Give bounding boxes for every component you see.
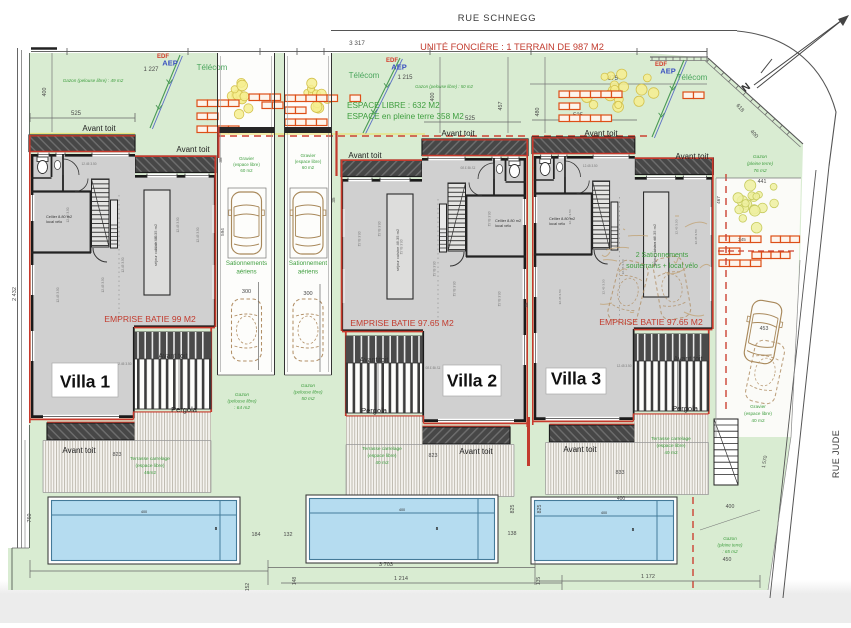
svg-text:Gravier: Gravier [239, 156, 255, 161]
svg-text:467: 467 [716, 196, 721, 204]
svg-text:Avant toit: Avant toit [441, 129, 475, 138]
svg-text:Avant toit: Avant toit [459, 447, 493, 456]
svg-text:12.45 3.50: 12.45 3.50 [377, 221, 381, 236]
svg-text:AEP: AEP [660, 67, 675, 76]
svg-text:UNITÉ FONCIÈRE : 1 TERRAIN DE: UNITÉ FONCIÈRE : 1 TERRAIN DE 987 M2 [420, 42, 604, 52]
svg-text:12.45 3.50: 12.45 3.50 [694, 229, 698, 244]
svg-text:594: 594 [220, 228, 225, 236]
svg-text:local vélo: local vélo [46, 219, 62, 224]
svg-text:12.45 3.50: 12.45 3.50 [497, 291, 501, 306]
svg-text:Villa 1: Villa 1 [60, 372, 111, 392]
svg-text:12.45 3.50: 12.45 3.50 [357, 231, 361, 246]
svg-text:Avant toit: Avant toit [584, 129, 618, 138]
svg-text:12.45 3.50: 12.45 3.50 [196, 227, 200, 242]
svg-text:35: 35 [218, 157, 223, 163]
svg-text:12.45 3.50: 12.45 3.50 [583, 164, 598, 168]
svg-text:(espace libre): (espace libre) [135, 463, 164, 469]
svg-text:séjour cuisine 46.35 m2: séjour cuisine 46.35 m2 [652, 223, 657, 266]
svg-text:séjour cuisine 46.35 m2: séjour cuisine 46.35 m2 [153, 223, 158, 266]
svg-text:(espace libre): (espace libre) [656, 443, 685, 449]
svg-text:Avant toit: Avant toit [675, 152, 709, 161]
svg-text:RUE SCHNEGG: RUE SCHNEGG [458, 12, 537, 23]
svg-text:46m2: 46m2 [144, 470, 156, 476]
svg-text:12.45 3.50: 12.45 3.50 [487, 211, 491, 226]
svg-text:132: 132 [284, 532, 293, 538]
svg-text:Avant toit: Avant toit [82, 124, 116, 133]
svg-text:Avant toit: Avant toit [563, 445, 597, 454]
svg-text:12.45 3.50: 12.45 3.50 [460, 166, 475, 170]
svg-text:Avant toit: Avant toit [176, 145, 210, 154]
svg-text:Gravier: Gravier [750, 404, 766, 410]
svg-text:Gazon (pelouse libre) : 49 m2: Gazon (pelouse libre) : 49 m2 [63, 78, 124, 83]
svg-text:Avant toit: Avant toit [62, 446, 96, 455]
svg-text:aériens: aériens [298, 269, 318, 276]
svg-text:400: 400 [141, 510, 147, 514]
svg-text:Avant toit: Avant toit [348, 151, 382, 160]
svg-text:453: 453 [760, 326, 769, 332]
svg-text:400: 400 [617, 496, 626, 502]
svg-text:12.45 3.50: 12.45 3.50 [602, 279, 606, 294]
svg-text:Avant toit: Avant toit [158, 353, 187, 360]
svg-text:Gravier: Gravier [300, 153, 316, 158]
svg-text:76 m2: 76 m2 [753, 168, 767, 174]
svg-text:EMPRISE BATIE 97.65 M2: EMPRISE BATIE 97.65 M2 [599, 317, 703, 327]
svg-text:Avant toit: Avant toit [673, 356, 702, 363]
svg-text:12.45 3.50: 12.45 3.50 [121, 257, 125, 272]
svg-text:525: 525 [465, 116, 476, 122]
svg-text:Sationnements: Sationnements [226, 260, 267, 267]
svg-text:EMPRISE BATIE 97.65 M2: EMPRISE BATIE 97.65 M2 [350, 318, 454, 328]
svg-text:12.45 3.50: 12.45 3.50 [558, 289, 562, 304]
svg-text:local vélo: local vélo [549, 221, 565, 226]
svg-text:Pergola: Pergola [672, 404, 699, 413]
svg-text:Villa 2: Villa 2 [447, 371, 498, 391]
svg-text:AEP: AEP [162, 59, 177, 68]
svg-text:138: 138 [508, 531, 517, 537]
svg-text:Villa 3: Villa 3 [551, 369, 602, 389]
svg-text:833: 833 [616, 470, 625, 476]
svg-text:Terrasse carrelage: Terrasse carrelage [130, 456, 170, 462]
svg-text:(espace libre): (espace libre) [295, 159, 322, 164]
svg-text:(pleine terre): (pleine terre) [747, 161, 774, 166]
svg-text:12.45 3.50: 12.45 3.50 [176, 217, 180, 232]
svg-text:Gazon: Gazon [301, 383, 315, 389]
svg-text:2 432: 2 432 [12, 287, 18, 301]
svg-text:184: 184 [252, 532, 261, 538]
svg-text:441: 441 [758, 179, 767, 185]
svg-text:400: 400 [399, 508, 405, 512]
svg-text:148: 148 [292, 577, 298, 586]
svg-text:Pergola: Pergola [171, 405, 198, 414]
svg-text:12.45 3.50: 12.45 3.50 [116, 362, 131, 366]
svg-text:50 m2: 50 m2 [301, 396, 315, 402]
svg-text:2 Sationnements: 2 Sationnements [636, 252, 689, 259]
svg-text:12.45 3.50: 12.45 3.50 [621, 259, 625, 274]
svg-text:3 703: 3 703 [379, 562, 393, 568]
svg-text:12.45 3.50: 12.45 3.50 [432, 261, 436, 276]
svg-text:12.45 3.50: 12.45 3.50 [675, 219, 679, 234]
svg-text:(pelouse libre): (pelouse libre) [293, 390, 323, 395]
svg-text:aériens: aériens [236, 269, 256, 276]
svg-text:35: 35 [524, 302, 529, 308]
svg-text:400: 400 [601, 511, 607, 515]
svg-text:3 317: 3 317 [349, 40, 365, 47]
svg-text:60 m2: 60 m2 [302, 165, 315, 170]
svg-text:Sationnement: Sationnement [289, 260, 327, 267]
svg-text:40 m2: 40 m2 [751, 418, 765, 424]
svg-text:12.45 3.50: 12.45 3.50 [452, 281, 456, 296]
svg-text:300: 300 [303, 291, 312, 297]
svg-text:35: 35 [331, 197, 336, 203]
svg-text:(pelouse libre): (pelouse libre) [227, 399, 257, 404]
svg-text:60 m2: 60 m2 [240, 168, 253, 173]
svg-text:12.45 3.50: 12.45 3.50 [425, 366, 440, 370]
svg-text:823: 823 [429, 453, 438, 459]
svg-text:400: 400 [42, 88, 48, 97]
svg-text:séjour cuisine 46.35 m2: séjour cuisine 46.35 m2 [395, 228, 400, 271]
svg-text:ESPACE LIBRE : 632 M2: ESPACE LIBRE : 632 M2 [347, 101, 440, 110]
svg-text:12.45 3.50: 12.45 3.50 [101, 277, 105, 292]
svg-text:480: 480 [535, 108, 541, 117]
svg-text:40 m2: 40 m2 [664, 450, 678, 456]
svg-text:local vélo: local vélo [495, 223, 511, 228]
svg-text:1 227: 1 227 [143, 67, 159, 73]
svg-text:Télécom: Télécom [677, 73, 708, 82]
svg-text:825: 825 [510, 505, 516, 514]
svg-text:12.45 3.50: 12.45 3.50 [617, 364, 632, 368]
svg-text:Gazon: Gazon [235, 392, 249, 398]
svg-text:1 214: 1 214 [394, 576, 408, 582]
svg-text:300: 300 [242, 289, 251, 295]
svg-text:400: 400 [726, 504, 735, 510]
svg-text:525: 525 [71, 111, 82, 117]
svg-text:450: 450 [723, 557, 732, 563]
svg-text:(espace libre): (espace libre) [367, 453, 396, 459]
svg-text:(espace libre): (espace libre) [744, 411, 772, 416]
svg-text:40 m2: 40 m2 [375, 460, 389, 466]
svg-text:823: 823 [113, 452, 122, 458]
svg-text:Télécom: Télécom [349, 71, 380, 80]
svg-text:: 65 m2: : 65 m2 [722, 549, 738, 554]
svg-text:345: 345 [738, 237, 746, 242]
svg-text:Gazon: Gazon [723, 536, 737, 541]
svg-text:825: 825 [537, 505, 543, 514]
svg-text:: 64 m2: : 64 m2 [234, 405, 250, 411]
svg-text:Terrasse carrelage: Terrasse carrelage [651, 436, 691, 442]
svg-text:1 215: 1 215 [397, 75, 413, 81]
svg-text:(espace libre): (espace libre) [233, 162, 260, 167]
svg-text:457: 457 [498, 102, 504, 111]
svg-text:EMPRISE BATIE 99 M2: EMPRISE BATIE 99 M2 [104, 314, 196, 324]
svg-text:(pleine terre): (pleine terre) [718, 543, 743, 548]
svg-text:760: 760 [27, 514, 33, 523]
svg-text:Gazon (pelouse libre) : 50 m2: Gazon (pelouse libre) : 50 m2 [415, 84, 473, 89]
svg-text:Terrasse carrelage: Terrasse carrelage [362, 446, 402, 452]
svg-text:12.45 3.50: 12.45 3.50 [56, 287, 60, 302]
svg-text:Télécom: Télécom [197, 63, 228, 72]
svg-text:souterrains + local vélo: souterrains + local vélo [626, 263, 698, 270]
svg-text:Pergola: Pergola [361, 406, 388, 415]
svg-text:AEP: AEP [391, 63, 406, 72]
svg-text:RUE JUDE: RUE JUDE [831, 430, 841, 478]
svg-text:Gazon: Gazon [753, 154, 767, 160]
svg-text:1 172: 1 172 [641, 574, 655, 580]
svg-text:152: 152 [245, 583, 251, 592]
svg-text:12.45 3.50: 12.45 3.50 [81, 162, 96, 166]
svg-text:ESPACE en pleine terre 358 M2: ESPACE en pleine terre 358 M2 [347, 112, 464, 121]
svg-text:Avantitoit: Avantitoit [360, 357, 389, 364]
